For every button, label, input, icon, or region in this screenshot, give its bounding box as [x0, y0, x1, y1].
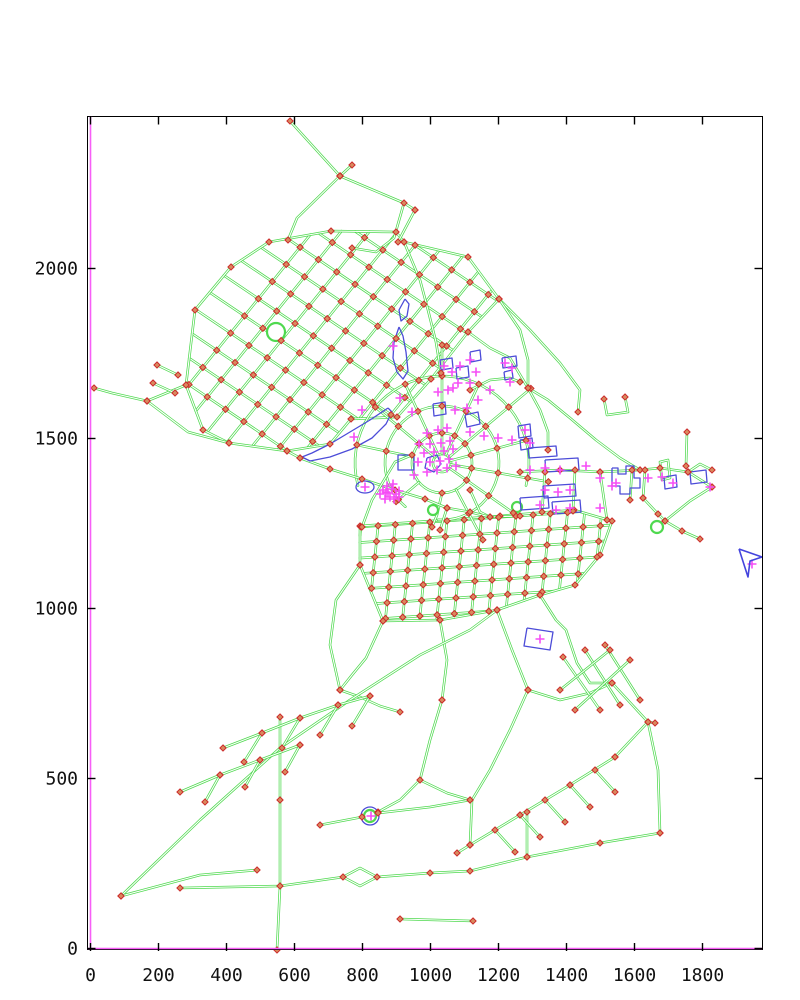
junction-node	[525, 475, 531, 481]
junction-node	[545, 479, 551, 485]
road-centerline	[545, 800, 565, 822]
poi-cross-marker	[426, 440, 435, 449]
y-axis-tick-label: 1500	[35, 429, 78, 450]
junction-node	[495, 470, 501, 476]
junction-node	[492, 546, 498, 552]
poi-cross-marker	[536, 635, 545, 644]
road-centerline	[528, 683, 612, 700]
junction-nodes-layer	[91, 118, 715, 953]
junction-node	[652, 720, 658, 726]
road	[643, 498, 700, 539]
junction-node	[494, 445, 500, 451]
junction-node	[561, 541, 567, 547]
road-network-layer	[94, 121, 712, 950]
road	[420, 780, 470, 800]
junction-node	[683, 463, 689, 469]
junction-node	[506, 576, 512, 582]
junction-node	[522, 590, 528, 596]
junction-node	[597, 840, 603, 846]
junction-node	[441, 549, 447, 555]
junction-node	[470, 918, 476, 924]
junction-node	[456, 564, 462, 570]
junction-node	[468, 452, 474, 458]
junction-node	[408, 536, 414, 542]
road-centerline	[377, 833, 660, 877]
junction-node	[601, 396, 607, 402]
road-centerline	[524, 513, 533, 600]
road-centerline	[540, 595, 612, 683]
junction-node	[383, 448, 389, 454]
poi-cross-marker	[456, 362, 465, 371]
junction-node	[423, 550, 429, 556]
road-centerline	[157, 365, 178, 375]
road-centerline	[308, 256, 463, 448]
junction-node	[458, 548, 464, 554]
poi-cross-marker	[582, 462, 591, 471]
road-centerline	[360, 541, 605, 558]
poi-cross-marker	[554, 488, 563, 497]
poi-cross-marker	[414, 458, 423, 467]
junction-node	[439, 490, 445, 496]
junction-node	[468, 465, 474, 471]
poi-cross-marker	[436, 457, 445, 466]
building-outline	[690, 470, 707, 484]
y-axis-tick-label: 1000	[35, 599, 78, 620]
junction-node	[509, 544, 515, 550]
annotations-layer	[739, 549, 762, 577]
map-viewer-window: 0200400600800100012001400160018000500100…	[0, 0, 800, 1000]
road-centerline	[343, 868, 377, 886]
road	[343, 868, 377, 886]
road-centerline	[378, 700, 442, 812]
junction-node	[577, 555, 583, 561]
junction-node	[545, 447, 551, 453]
road-centerline	[320, 817, 362, 825]
poi-cross-marker	[423, 468, 432, 477]
x-axis-tick-label: 200	[142, 965, 175, 986]
junction-node	[475, 547, 481, 553]
junction-node	[523, 574, 529, 580]
junction-node	[436, 596, 442, 602]
junction-node	[560, 556, 566, 562]
road-centerline	[340, 621, 383, 690]
junction-node	[487, 592, 493, 598]
map-plot-canvas[interactable]: 0200400600800100012001400160018000500100…	[0, 0, 800, 1000]
junction-node	[528, 527, 534, 533]
junction-node	[401, 598, 407, 604]
junction-node	[684, 429, 690, 435]
junction-node	[442, 533, 448, 539]
poi-cross-marker	[541, 486, 550, 495]
plaza-circle	[651, 521, 663, 533]
road-centerline	[470, 690, 528, 845]
road-centerline	[643, 498, 700, 539]
poi-cross-marker	[437, 439, 446, 448]
junction-node	[491, 561, 497, 567]
plot-frame	[88, 117, 763, 950]
junction-node	[489, 577, 495, 583]
x-axis-tick-label: 400	[210, 965, 243, 986]
junction-node	[417, 613, 423, 619]
junction-node	[578, 539, 584, 545]
y-axis-tick-label: 2000	[35, 259, 78, 280]
north-arrow-icon	[739, 549, 762, 577]
poi-cross-marker	[444, 386, 453, 395]
road	[121, 870, 257, 896]
road-centerline	[600, 472, 607, 520]
poi-cross-marker	[596, 474, 605, 483]
poi-cross-marker	[361, 483, 370, 492]
junction-node	[370, 570, 376, 576]
road-centerline	[319, 233, 467, 333]
junction-node	[422, 566, 428, 572]
junction-node	[277, 883, 283, 889]
junction-node	[609, 518, 615, 524]
road-centerline	[121, 610, 497, 896]
junction-node	[384, 600, 390, 606]
junction-node	[386, 584, 392, 590]
junction-node	[439, 430, 445, 436]
junction-node	[455, 579, 461, 585]
x-axis-tick-label: 1000	[409, 965, 452, 986]
junction-node	[597, 523, 603, 529]
road-centerline	[147, 385, 186, 401]
x-axis-tick-label: 800	[346, 965, 379, 986]
poi-cross-marker	[480, 432, 489, 441]
x-axis-tick-label: 1800	[681, 965, 724, 986]
junction-node	[541, 573, 547, 579]
junction-node	[472, 578, 478, 584]
junction-node	[406, 552, 412, 558]
road-centerline	[290, 121, 340, 176]
plaza-circle	[428, 505, 438, 515]
road-centerline	[414, 244, 498, 300]
junction-node	[544, 542, 550, 548]
junction-node	[317, 822, 323, 828]
x-axis-tick-label: 0	[85, 965, 96, 986]
road-centerline	[497, 610, 528, 690]
road-centerline	[121, 870, 257, 896]
junction-node	[254, 867, 260, 873]
junction-node	[511, 529, 517, 535]
poi-cross-marker	[389, 342, 398, 351]
x-axis-tick-label: 600	[278, 965, 311, 986]
junction-node	[580, 524, 586, 530]
junction-node	[575, 409, 581, 415]
junction-node	[387, 568, 393, 574]
junction-node	[177, 885, 183, 891]
junction-node	[91, 385, 97, 391]
junction-node	[467, 868, 473, 874]
junction-node	[277, 714, 283, 720]
poi-cross-marker	[556, 466, 565, 475]
poi-cross-marker	[472, 368, 481, 377]
road-centerline	[688, 472, 712, 487]
junction-node	[397, 916, 403, 922]
junction-node	[542, 558, 548, 564]
junction-node	[427, 870, 433, 876]
poi-cross-marker	[466, 428, 475, 437]
junction-node	[657, 830, 663, 836]
poi-cross-marker	[526, 466, 535, 475]
junction-node	[622, 394, 628, 400]
road-centerline	[595, 770, 615, 792]
road-centerline	[542, 512, 551, 595]
y-axis-tick-label: 500	[45, 769, 78, 790]
road	[528, 388, 640, 470]
junction-node	[425, 535, 431, 541]
junction-node	[563, 525, 569, 531]
junction-node	[627, 497, 633, 503]
road-centerline	[362, 455, 412, 527]
junction-node	[420, 582, 426, 588]
road-centerline	[520, 815, 540, 837]
junction-node	[524, 854, 530, 860]
junction-node	[439, 565, 445, 571]
road	[121, 610, 497, 896]
road	[378, 700, 442, 812]
junction-node	[572, 467, 578, 473]
poi-cross-marker	[454, 379, 463, 388]
road	[340, 621, 383, 690]
building-outline	[399, 299, 409, 321]
junction-node	[277, 797, 283, 803]
junction-node	[517, 469, 523, 475]
junction-node	[391, 537, 397, 543]
road-centerline	[495, 830, 515, 852]
junction-node	[437, 527, 443, 533]
junction-node	[439, 697, 445, 703]
junction-node	[389, 553, 395, 559]
junction-node	[546, 526, 552, 532]
axes-layer: 0200400600800100012001400160018000500100…	[35, 117, 763, 987]
road-centerline	[153, 383, 175, 393]
junction-node	[418, 597, 424, 603]
poi-cross-marker	[466, 356, 475, 365]
road	[540, 595, 612, 683]
junction-node	[473, 562, 479, 568]
road	[470, 690, 528, 845]
junction-node	[558, 572, 564, 578]
junction-node	[437, 580, 443, 586]
poi-cross-marker	[474, 396, 483, 405]
junction-node	[575, 571, 581, 577]
junction-node	[459, 532, 465, 538]
junction-node	[527, 543, 533, 549]
junction-node	[453, 595, 459, 601]
junction-node	[505, 591, 511, 597]
poi-markers-layer	[350, 342, 757, 821]
junction-node	[405, 567, 411, 573]
x-axis-tick-label: 1400	[545, 965, 588, 986]
junction-node	[494, 530, 500, 536]
road-centerline	[570, 785, 590, 807]
road-centerline	[192, 334, 339, 433]
junction-node	[508, 560, 514, 566]
junction-node	[439, 403, 445, 409]
road-centerline	[210, 292, 395, 417]
junction-node	[373, 538, 379, 544]
junction-node	[372, 554, 378, 560]
junction-node	[403, 583, 409, 589]
junction-node	[596, 538, 602, 544]
poi-cross-marker	[449, 384, 458, 393]
junction-node	[642, 467, 648, 473]
poi-cross-marker	[596, 504, 605, 513]
road-centerline	[94, 388, 147, 401]
x-axis-tick-label: 1600	[613, 965, 656, 986]
junction-node	[397, 709, 403, 715]
road-centerline	[665, 487, 712, 521]
junction-node	[470, 594, 476, 600]
junction-node	[328, 228, 334, 234]
road	[362, 455, 412, 527]
junction-node	[525, 559, 531, 565]
y-axis-tick-label: 0	[67, 939, 78, 960]
x-axis-tick-label: 1200	[477, 965, 520, 986]
building-outline	[433, 402, 446, 416]
